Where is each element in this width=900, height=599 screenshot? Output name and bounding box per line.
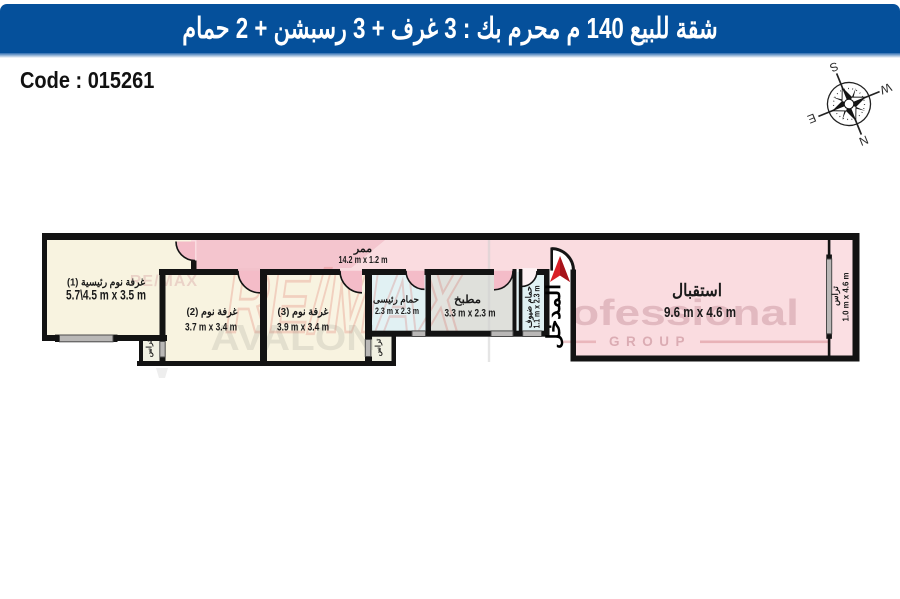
svg-text:3.7 m x 3.4 m: 3.7 m x 3.4 m (185, 322, 237, 334)
svg-text:استقبال: استقبال (672, 281, 722, 300)
svg-text:S: S (828, 59, 841, 75)
svg-text:3.9 m x 3.4 m: 3.9 m x 3.4 m (277, 322, 329, 334)
svg-text:3.3 m x 2.3 m: 3.3 m x 2.3 m (445, 308, 496, 320)
svg-text:حمام رئيسى: حمام رئيسى (373, 295, 419, 306)
svg-text:W: W (877, 80, 893, 97)
svg-text:GROUP: GROUP (609, 334, 691, 349)
svg-text:تراس: تراس (374, 338, 384, 356)
svg-text:N: N (857, 133, 870, 149)
svg-text:تراس: تراس (145, 339, 155, 357)
svg-text:مطبخ: مطبخ (454, 294, 481, 306)
svg-text:E: E (805, 111, 818, 127)
svg-text:غرفة نوم (3): غرفة نوم (3) (278, 306, 329, 318)
svg-text:1.0 m x 4.6 m: 1.0 m x 4.6 m (841, 272, 851, 321)
svg-text:1.1 m x 2.3 m: 1.1 m x 2.3 m (532, 285, 542, 328)
svg-text:5.7\4.5 m x 3.5 m: 5.7\4.5 m x 3.5 m (66, 288, 146, 303)
svg-text:2.3 m x 2.3 m: 2.3 m x 2.3 m (375, 306, 419, 317)
svg-text:غرفة نوم (2): غرفة نوم (2) (187, 306, 238, 318)
svg-text:المدخل: المدخل (544, 284, 565, 349)
svg-text:تراس: تراس (830, 285, 841, 305)
svg-text:9.6 m x 4.6 m: 9.6 m x 4.6 m (664, 304, 736, 321)
svg-text:14.2 m x 1.2 m: 14.2 m x 1.2 m (339, 254, 388, 266)
